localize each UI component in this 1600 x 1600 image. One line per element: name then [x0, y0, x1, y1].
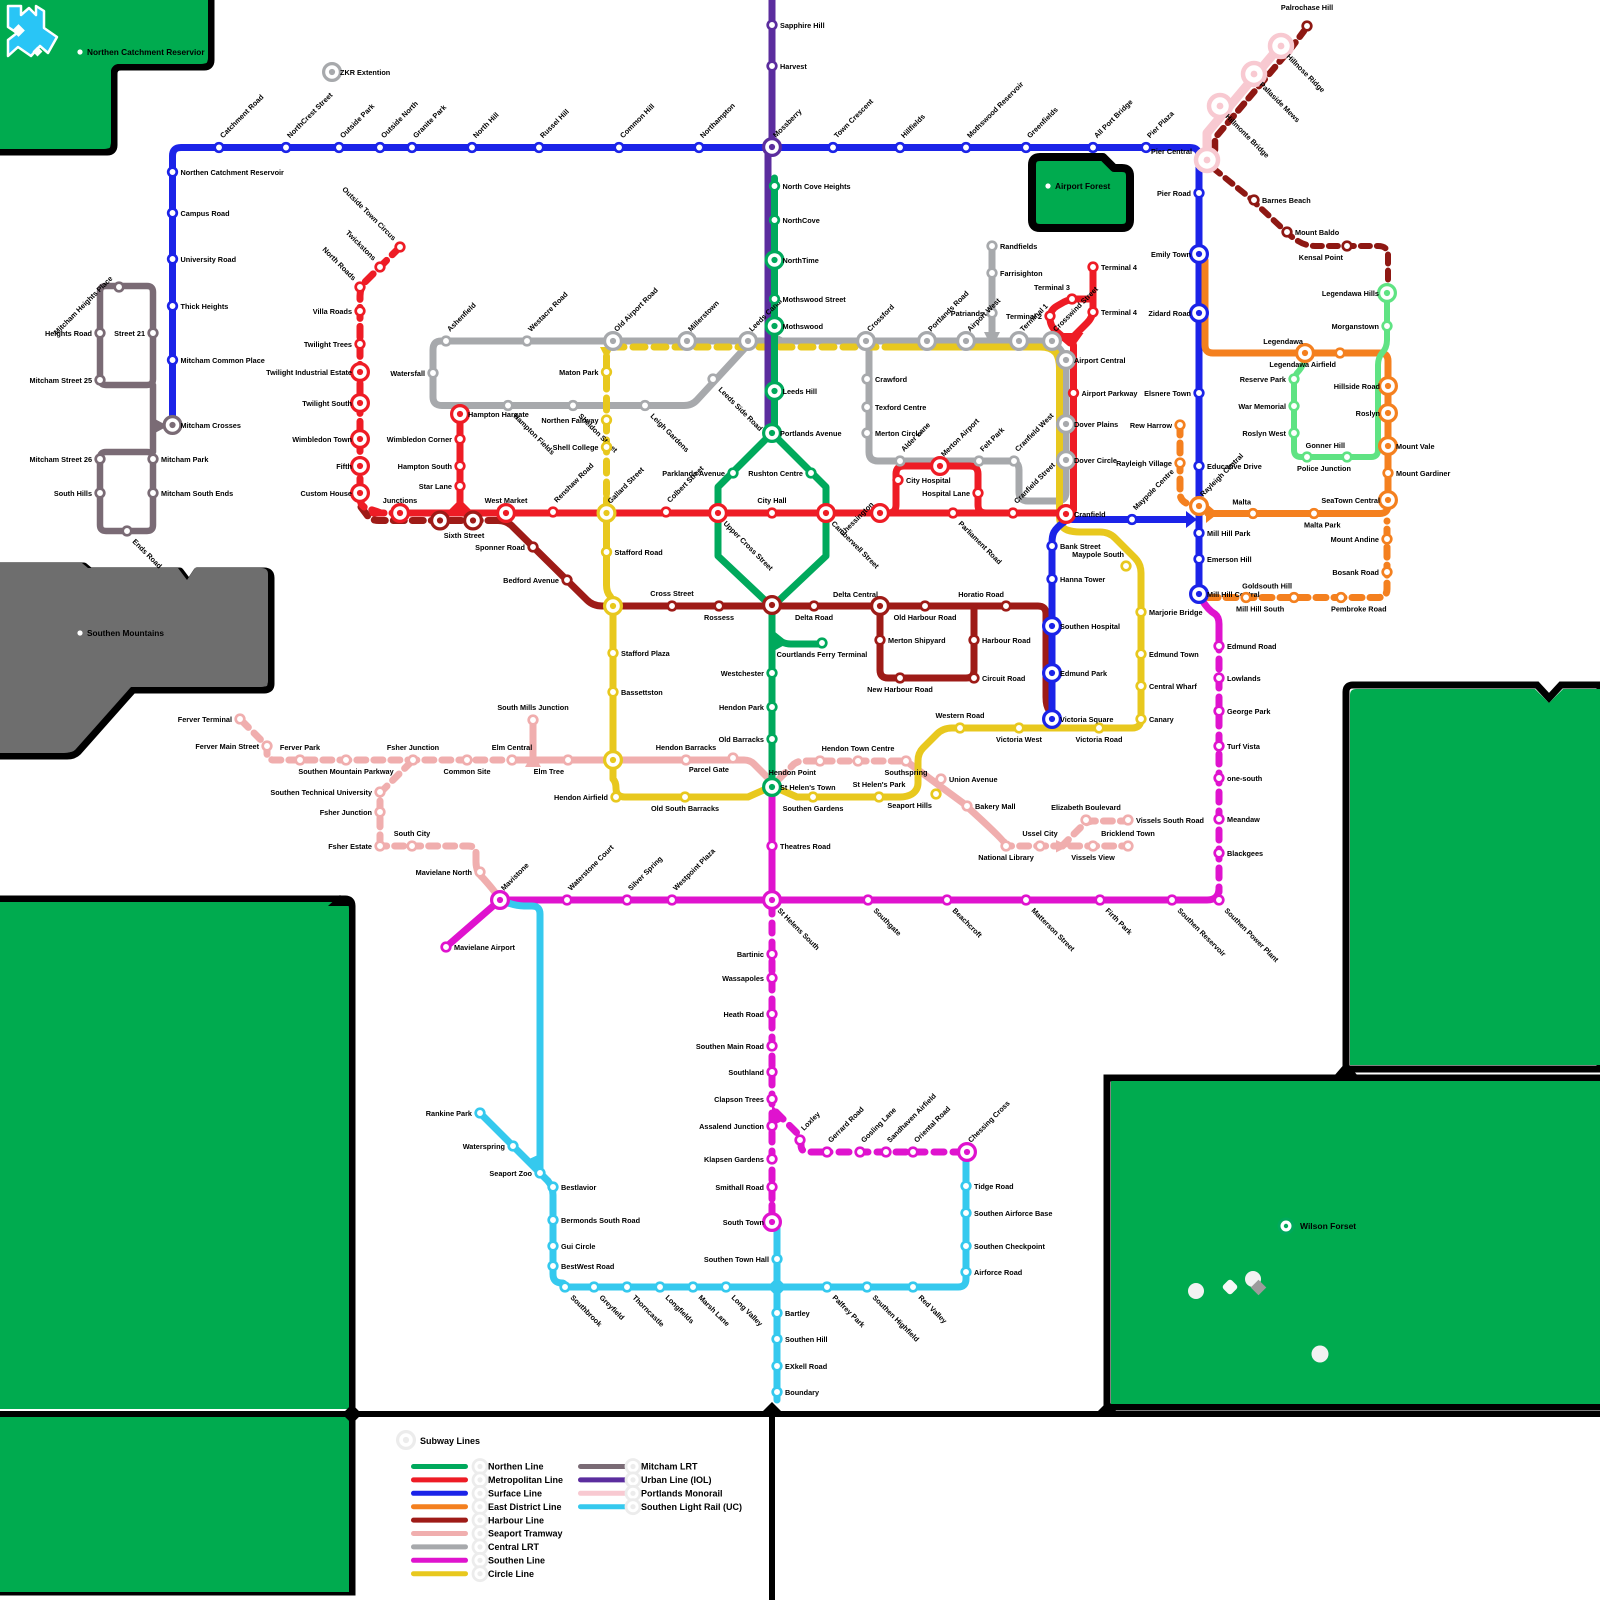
svg-text:Tidge Road: Tidge Road: [974, 1182, 1014, 1191]
svg-text:Parcel Gate: Parcel Gate: [689, 765, 729, 774]
svg-text:Vissels View: Vissels View: [1071, 853, 1115, 862]
svg-text:Pembroke Road: Pembroke Road: [1331, 605, 1387, 614]
svg-text:South Town: South Town: [723, 1218, 764, 1227]
svg-text:Old Harbour Road: Old Harbour Road: [894, 613, 957, 622]
svg-text:Clapson Trees: Clapson Trees: [714, 1095, 764, 1104]
svg-text:Assalend Junction: Assalend Junction: [699, 1122, 764, 1131]
svg-text:Old South Barracks: Old South Barracks: [651, 804, 719, 813]
svg-text:Hendon Barracks: Hendon Barracks: [656, 743, 716, 752]
svg-text:Twilight Industrial Estate: Twilight Industrial Estate: [266, 368, 352, 377]
svg-text:Rew Harrow: Rew Harrow: [1130, 421, 1172, 430]
svg-text:Wimbledon Corner: Wimbledon Corner: [387, 435, 452, 444]
svg-text:Fsher Junction: Fsher Junction: [320, 808, 372, 817]
svg-text:Dover Circle: Dover Circle: [1074, 456, 1117, 465]
svg-text:Urban Line (IOL): Urban Line (IOL): [641, 1475, 712, 1485]
svg-text:Terminal 3: Terminal 3: [1034, 283, 1070, 292]
svg-text:Mount Baldo: Mount Baldo: [1295, 228, 1340, 237]
svg-text:SeaTown Central: SeaTown Central: [1321, 496, 1380, 505]
svg-text:West Market: West Market: [485, 496, 528, 505]
svg-text:Union Avenue: Union Avenue: [949, 775, 998, 784]
svg-text:Twilight Trees: Twilight Trees: [304, 340, 352, 349]
svg-text:Terminal 4: Terminal 4: [1101, 308, 1138, 317]
svg-text:Bosank Road: Bosank Road: [1332, 568, 1379, 577]
svg-text:New Harbour Road: New Harbour Road: [867, 685, 933, 694]
svg-text:Rossess: Rossess: [704, 613, 734, 622]
svg-text:Southen Airforce Base: Southen Airforce Base: [974, 1209, 1052, 1218]
svg-text:Westchester: Westchester: [721, 669, 764, 678]
svg-text:Fsher Junction: Fsher Junction: [387, 743, 439, 752]
svg-text:Bedford Avenue: Bedford Avenue: [503, 576, 559, 585]
svg-text:Portlands Monorail: Portlands Monorail: [641, 1489, 723, 1499]
svg-text:Merton Circle: Merton Circle: [875, 429, 922, 438]
svg-text:City Hall: City Hall: [757, 496, 786, 505]
svg-text:Ussel City: Ussel City: [1022, 829, 1058, 838]
svg-text:Seaport Hills: Seaport Hills: [887, 801, 932, 810]
svg-text:Southen Checkpoint: Southen Checkpoint: [974, 1242, 1046, 1251]
svg-text:Mitcham Common Place: Mitcham Common Place: [181, 356, 265, 365]
svg-text:Malta: Malta: [1232, 498, 1252, 507]
svg-text:Blackgees: Blackgees: [1227, 849, 1263, 858]
svg-text:Reserve Park: Reserve Park: [1240, 375, 1287, 384]
svg-text:Old Barracks: Old Barracks: [719, 735, 764, 744]
svg-text:Southland: Southland: [728, 1068, 764, 1077]
svg-text:Kensal Point: Kensal Point: [1299, 253, 1344, 262]
svg-text:Elm Central: Elm Central: [492, 743, 533, 752]
svg-text:Roslyn: Roslyn: [1356, 409, 1380, 418]
svg-text:Sponner Road: Sponner Road: [475, 543, 525, 552]
svg-text:North Cove Heights: North Cove Heights: [783, 182, 851, 191]
svg-text:Campus Road: Campus Road: [181, 209, 230, 218]
svg-text:South Hills: South Hills: [54, 489, 92, 498]
svg-text:Rayleigh Village: Rayleigh Village: [1116, 459, 1172, 468]
svg-text:Malta Park: Malta Park: [1304, 521, 1341, 530]
svg-text:St Helen's Park: St Helen's Park: [853, 780, 907, 789]
svg-text:Watersfall: Watersfall: [390, 369, 425, 378]
svg-text:Surface Line: Surface Line: [488, 1489, 542, 1499]
svg-text:Hendon Airfield: Hendon Airfield: [554, 793, 608, 802]
svg-text:Mitcham Street 25: Mitcham Street 25: [30, 376, 92, 385]
svg-text:Western Road: Western Road: [936, 711, 985, 720]
svg-text:Emerson Hill: Emerson Hill: [1207, 555, 1252, 564]
svg-text:Central LRT: Central LRT: [488, 1542, 540, 1552]
svg-text:Airforce Road: Airforce Road: [974, 1268, 1022, 1277]
svg-text:Ferver Park: Ferver Park: [280, 743, 321, 752]
svg-text:Mount Vale: Mount Vale: [1396, 442, 1435, 451]
svg-text:Gui Circle: Gui Circle: [561, 1242, 595, 1251]
svg-text:Victoria Road: Victoria Road: [1076, 735, 1123, 744]
svg-text:Marjorie Bridge: Marjorie Bridge: [1149, 608, 1203, 617]
svg-text:Hanna Tower: Hanna Tower: [1060, 575, 1105, 584]
svg-text:Ferver Terminal: Ferver Terminal: [178, 715, 232, 724]
svg-text:Rushton Centre: Rushton Centre: [748, 469, 803, 478]
svg-text:Southen Line: Southen Line: [488, 1556, 545, 1566]
svg-text:Circle Line: Circle Line: [488, 1569, 534, 1579]
svg-text:Zidard Road: Zidard Road: [1148, 309, 1191, 318]
svg-text:Canary: Canary: [1149, 715, 1175, 724]
svg-text:Horatio Road: Horatio Road: [958, 590, 1004, 599]
svg-text:Courtlands Ferry Terminal: Courtlands Ferry Terminal: [777, 650, 868, 659]
svg-text:Northen Catchment Reservoir: Northen Catchment Reservoir: [181, 168, 285, 177]
svg-text:Mitcham LRT: Mitcham LRT: [641, 1462, 698, 1472]
svg-text:Northen Catchment Reservior: Northen Catchment Reservior: [87, 47, 205, 57]
svg-text:Bank Street: Bank Street: [1060, 542, 1101, 551]
svg-text:EXkell Road: EXkell Road: [785, 1362, 827, 1371]
svg-text:Mill Hill Central: Mill Hill Central: [1207, 590, 1260, 599]
svg-text:Klapsen Gardens: Klapsen Gardens: [704, 1155, 764, 1164]
svg-text:Southspring: Southspring: [885, 768, 928, 777]
svg-text:Gonner Hill: Gonner Hill: [1306, 441, 1345, 450]
svg-text:Victoria West: Victoria West: [996, 735, 1043, 744]
svg-text:Dover Plains: Dover Plains: [1074, 420, 1118, 429]
svg-text:University Road: University Road: [181, 255, 237, 264]
svg-text:Hendon Town Centre: Hendon Town Centre: [822, 744, 895, 753]
svg-text:Star Lane: Star Lane: [419, 482, 452, 491]
svg-text:NorthTime: NorthTime: [783, 256, 819, 265]
svg-text:St Helen's Town: St Helen's Town: [780, 783, 836, 792]
svg-text:Mount Andine: Mount Andine: [1331, 535, 1379, 544]
svg-text:Merton Shipyard: Merton Shipyard: [888, 636, 946, 645]
svg-text:National Library: National Library: [978, 853, 1034, 862]
svg-text:Southen Town Hall: Southen Town Hall: [704, 1255, 769, 1264]
svg-text:Edmund Town: Edmund Town: [1149, 650, 1199, 659]
svg-text:Cranfield: Cranfield: [1074, 510, 1106, 519]
svg-text:Heights Road: Heights Road: [45, 329, 92, 338]
svg-text:Hospital Lane: Hospital Lane: [922, 489, 970, 498]
svg-text:East District Line: East District Line: [488, 1502, 562, 1512]
svg-text:Sapphire Hill: Sapphire Hill: [780, 21, 825, 30]
svg-text:Texford Centre: Texford Centre: [875, 403, 926, 412]
svg-text:Southen Hospital: Southen Hospital: [1060, 622, 1120, 631]
svg-text:Terminal 4: Terminal 4: [1101, 263, 1138, 272]
svg-text:Edmund Park: Edmund Park: [1060, 669, 1108, 678]
svg-text:Delta Central: Delta Central: [833, 590, 878, 599]
svg-text:Airport Central: Airport Central: [1074, 356, 1126, 365]
svg-text:Parklands Avenue: Parklands Avenue: [662, 469, 725, 478]
svg-text:Harbour Road: Harbour Road: [982, 636, 1031, 645]
svg-text:Elm Tree: Elm Tree: [534, 767, 564, 776]
svg-text:Vissels South Road: Vissels South Road: [1136, 816, 1204, 825]
svg-text:Fsher Estate: Fsher Estate: [328, 842, 372, 851]
svg-text:Northen Line: Northen Line: [488, 1462, 544, 1472]
svg-text:Southen Light Rail (UC): Southen Light Rail (UC): [641, 1502, 742, 1512]
svg-text:Emily Town: Emily Town: [1151, 250, 1191, 259]
svg-text:one-south: one-south: [1227, 774, 1262, 783]
svg-text:Central Wharf: Central Wharf: [1149, 682, 1197, 691]
svg-text:Mothswood: Mothswood: [783, 322, 824, 331]
svg-text:Victoria Square: Victoria Square: [1060, 715, 1113, 724]
svg-text:Mitcham Crosses: Mitcham Crosses: [181, 421, 241, 430]
svg-text:Hendon Park: Hendon Park: [719, 703, 765, 712]
svg-text:Maypole South: Maypole South: [1072, 550, 1124, 559]
svg-text:Farrisighton: Farrisighton: [1000, 269, 1043, 278]
svg-text:Mothswood Street: Mothswood Street: [783, 295, 847, 304]
svg-text:Airport Parkway: Airport Parkway: [1082, 389, 1139, 398]
svg-text:Terminal 2: Terminal 2: [1006, 312, 1042, 321]
svg-text:Turf Vista: Turf Vista: [1227, 742, 1261, 751]
svg-text:Lowlands: Lowlands: [1227, 674, 1261, 683]
svg-text:Mavielane North: Mavielane North: [416, 868, 472, 877]
svg-text:Leeds Hill: Leeds Hill: [783, 387, 817, 396]
svg-text:George Park: George Park: [1227, 707, 1271, 716]
svg-text:Boundary: Boundary: [785, 1388, 820, 1397]
svg-text:Bermonds South Road: Bermonds South Road: [561, 1216, 640, 1225]
svg-text:Legendawa: Legendawa: [1263, 337, 1304, 346]
svg-text:War Memorial: War Memorial: [1238, 402, 1286, 411]
svg-text:South City: South City: [394, 829, 431, 838]
svg-text:Stafford Road: Stafford Road: [615, 548, 663, 557]
svg-text:Seaport Tramway: Seaport Tramway: [488, 1529, 563, 1539]
svg-text:South Mills Junction: South Mills Junction: [497, 703, 568, 712]
svg-text:Wilson Forset: Wilson Forset: [1300, 1221, 1356, 1231]
svg-text:Fifth: Fifth: [336, 462, 352, 471]
svg-text:Northen Fairway: Northen Fairway: [541, 416, 599, 425]
svg-text:Seaport Zoo: Seaport Zoo: [489, 1169, 532, 1178]
svg-text:Goldsouth Hill: Goldsouth Hill: [1242, 582, 1292, 591]
svg-text:BestWest Road: BestWest Road: [561, 1262, 614, 1271]
svg-text:Mill Hill South: Mill Hill South: [1236, 605, 1284, 614]
svg-text:Randfields: Randfields: [1000, 242, 1037, 251]
svg-text:Mitcham Street 26: Mitcham Street 26: [30, 455, 92, 464]
svg-text:Southen Technical University: Southen Technical University: [270, 788, 373, 797]
svg-text:Mavielane Airport: Mavielane Airport: [454, 943, 516, 952]
svg-text:Airport Forest: Airport Forest: [1055, 181, 1111, 191]
svg-text:Bakery Mall: Bakery Mall: [975, 802, 1016, 811]
svg-text:Street 21: Street 21: [114, 329, 145, 338]
svg-text:Crawford: Crawford: [875, 375, 907, 384]
svg-text:Ferver Main Street: Ferver Main Street: [195, 742, 259, 751]
svg-text:Metropolitan Line: Metropolitan Line: [488, 1475, 563, 1485]
svg-text:Heath Road: Heath Road: [723, 1010, 764, 1019]
svg-text:Elsnere Town: Elsnere Town: [1144, 389, 1191, 398]
svg-text:Southen Mountains: Southen Mountains: [87, 628, 164, 638]
svg-text:Sixth Street: Sixth Street: [444, 531, 485, 540]
svg-text:Mitcham South Ends: Mitcham South Ends: [161, 489, 233, 498]
svg-text:Theatres Road: Theatres Road: [780, 842, 831, 851]
svg-text:Bestlavior: Bestlavior: [561, 1183, 596, 1192]
svg-text:Harbour Line: Harbour Line: [488, 1515, 544, 1525]
svg-text:Portlands Avenue: Portlands Avenue: [780, 429, 842, 438]
svg-text:Southen Mountain Parkway: Southen Mountain Parkway: [298, 767, 394, 776]
svg-text:Hendon Point: Hendon Point: [769, 768, 817, 777]
svg-text:Subway Lines: Subway Lines: [420, 1436, 480, 1446]
svg-text:Hillside Road: Hillside Road: [1334, 382, 1380, 391]
svg-text:Southen Main Road: Southen Main Road: [696, 1042, 764, 1051]
svg-text:Shell College: Shell College: [553, 443, 599, 452]
svg-text:Morganstown: Morganstown: [1332, 322, 1379, 331]
svg-text:Wassapoles: Wassapoles: [722, 974, 764, 983]
svg-text:Southen Hill: Southen Hill: [785, 1335, 828, 1344]
svg-text:Rankine Park: Rankine Park: [426, 1109, 473, 1118]
svg-text:Wimbledon Town: Wimbledon Town: [292, 435, 352, 444]
svg-text:Villa Roads: Villa Roads: [313, 307, 352, 316]
svg-text:Meandaw: Meandaw: [1227, 815, 1260, 824]
svg-text:Common Site: Common Site: [443, 767, 490, 776]
svg-text:Hampton South: Hampton South: [398, 462, 452, 471]
svg-text:Palrochase Hill: Palrochase Hill: [1281, 3, 1333, 12]
svg-text:Bartinic: Bartinic: [737, 950, 764, 959]
svg-text:Bassettston: Bassettston: [621, 688, 663, 697]
svg-text:Southen Gardens: Southen Gardens: [783, 804, 844, 813]
svg-text:Mount Gardiner: Mount Gardiner: [1396, 469, 1450, 478]
svg-text:Thick Heights: Thick Heights: [181, 302, 229, 311]
svg-text:Waterspring: Waterspring: [463, 1142, 505, 1151]
svg-text:Legendawa Hills: Legendawa Hills: [1322, 289, 1379, 298]
svg-text:Bartley: Bartley: [785, 1309, 811, 1318]
svg-text:Delta Road: Delta Road: [795, 613, 833, 622]
svg-text:Cross Street: Cross Street: [650, 589, 694, 598]
svg-text:Smithall Road: Smithall Road: [715, 1183, 764, 1192]
svg-text:Mitcham Park: Mitcham Park: [161, 455, 209, 464]
svg-text:Stafford Plaza: Stafford Plaza: [621, 649, 671, 658]
svg-text:Elizabeth Boulevard: Elizabeth Boulevard: [1051, 803, 1121, 812]
svg-text:Mill Hill Park: Mill Hill Park: [1207, 529, 1251, 538]
svg-text:Bricklend Town: Bricklend Town: [1101, 829, 1155, 838]
svg-text:Pier Central: Pier Central: [1151, 147, 1192, 156]
svg-text:City Hospital: City Hospital: [906, 476, 951, 485]
svg-text:Police Junction: Police Junction: [1297, 464, 1351, 473]
svg-text:Hampton Hargate: Hampton Hargate: [468, 410, 529, 419]
svg-text:Pier Road: Pier Road: [1157, 189, 1191, 198]
svg-text:Barnes Beach: Barnes Beach: [1262, 196, 1311, 205]
svg-text:Twilight South: Twilight South: [302, 399, 352, 408]
svg-text:Roslyn West: Roslyn West: [1242, 429, 1286, 438]
svg-text:Edmund Road: Edmund Road: [1227, 642, 1276, 651]
svg-text:Custom House: Custom House: [301, 489, 353, 498]
svg-text:Junctions: Junctions: [383, 496, 417, 505]
svg-text:Harvest: Harvest: [780, 62, 807, 71]
svg-text:NorthCove: NorthCove: [783, 216, 820, 225]
svg-text:Circuit Road: Circuit Road: [982, 674, 1025, 683]
svg-text:ZKR Extention: ZKR Extention: [340, 68, 390, 77]
svg-text:Maton Park: Maton Park: [559, 368, 599, 377]
